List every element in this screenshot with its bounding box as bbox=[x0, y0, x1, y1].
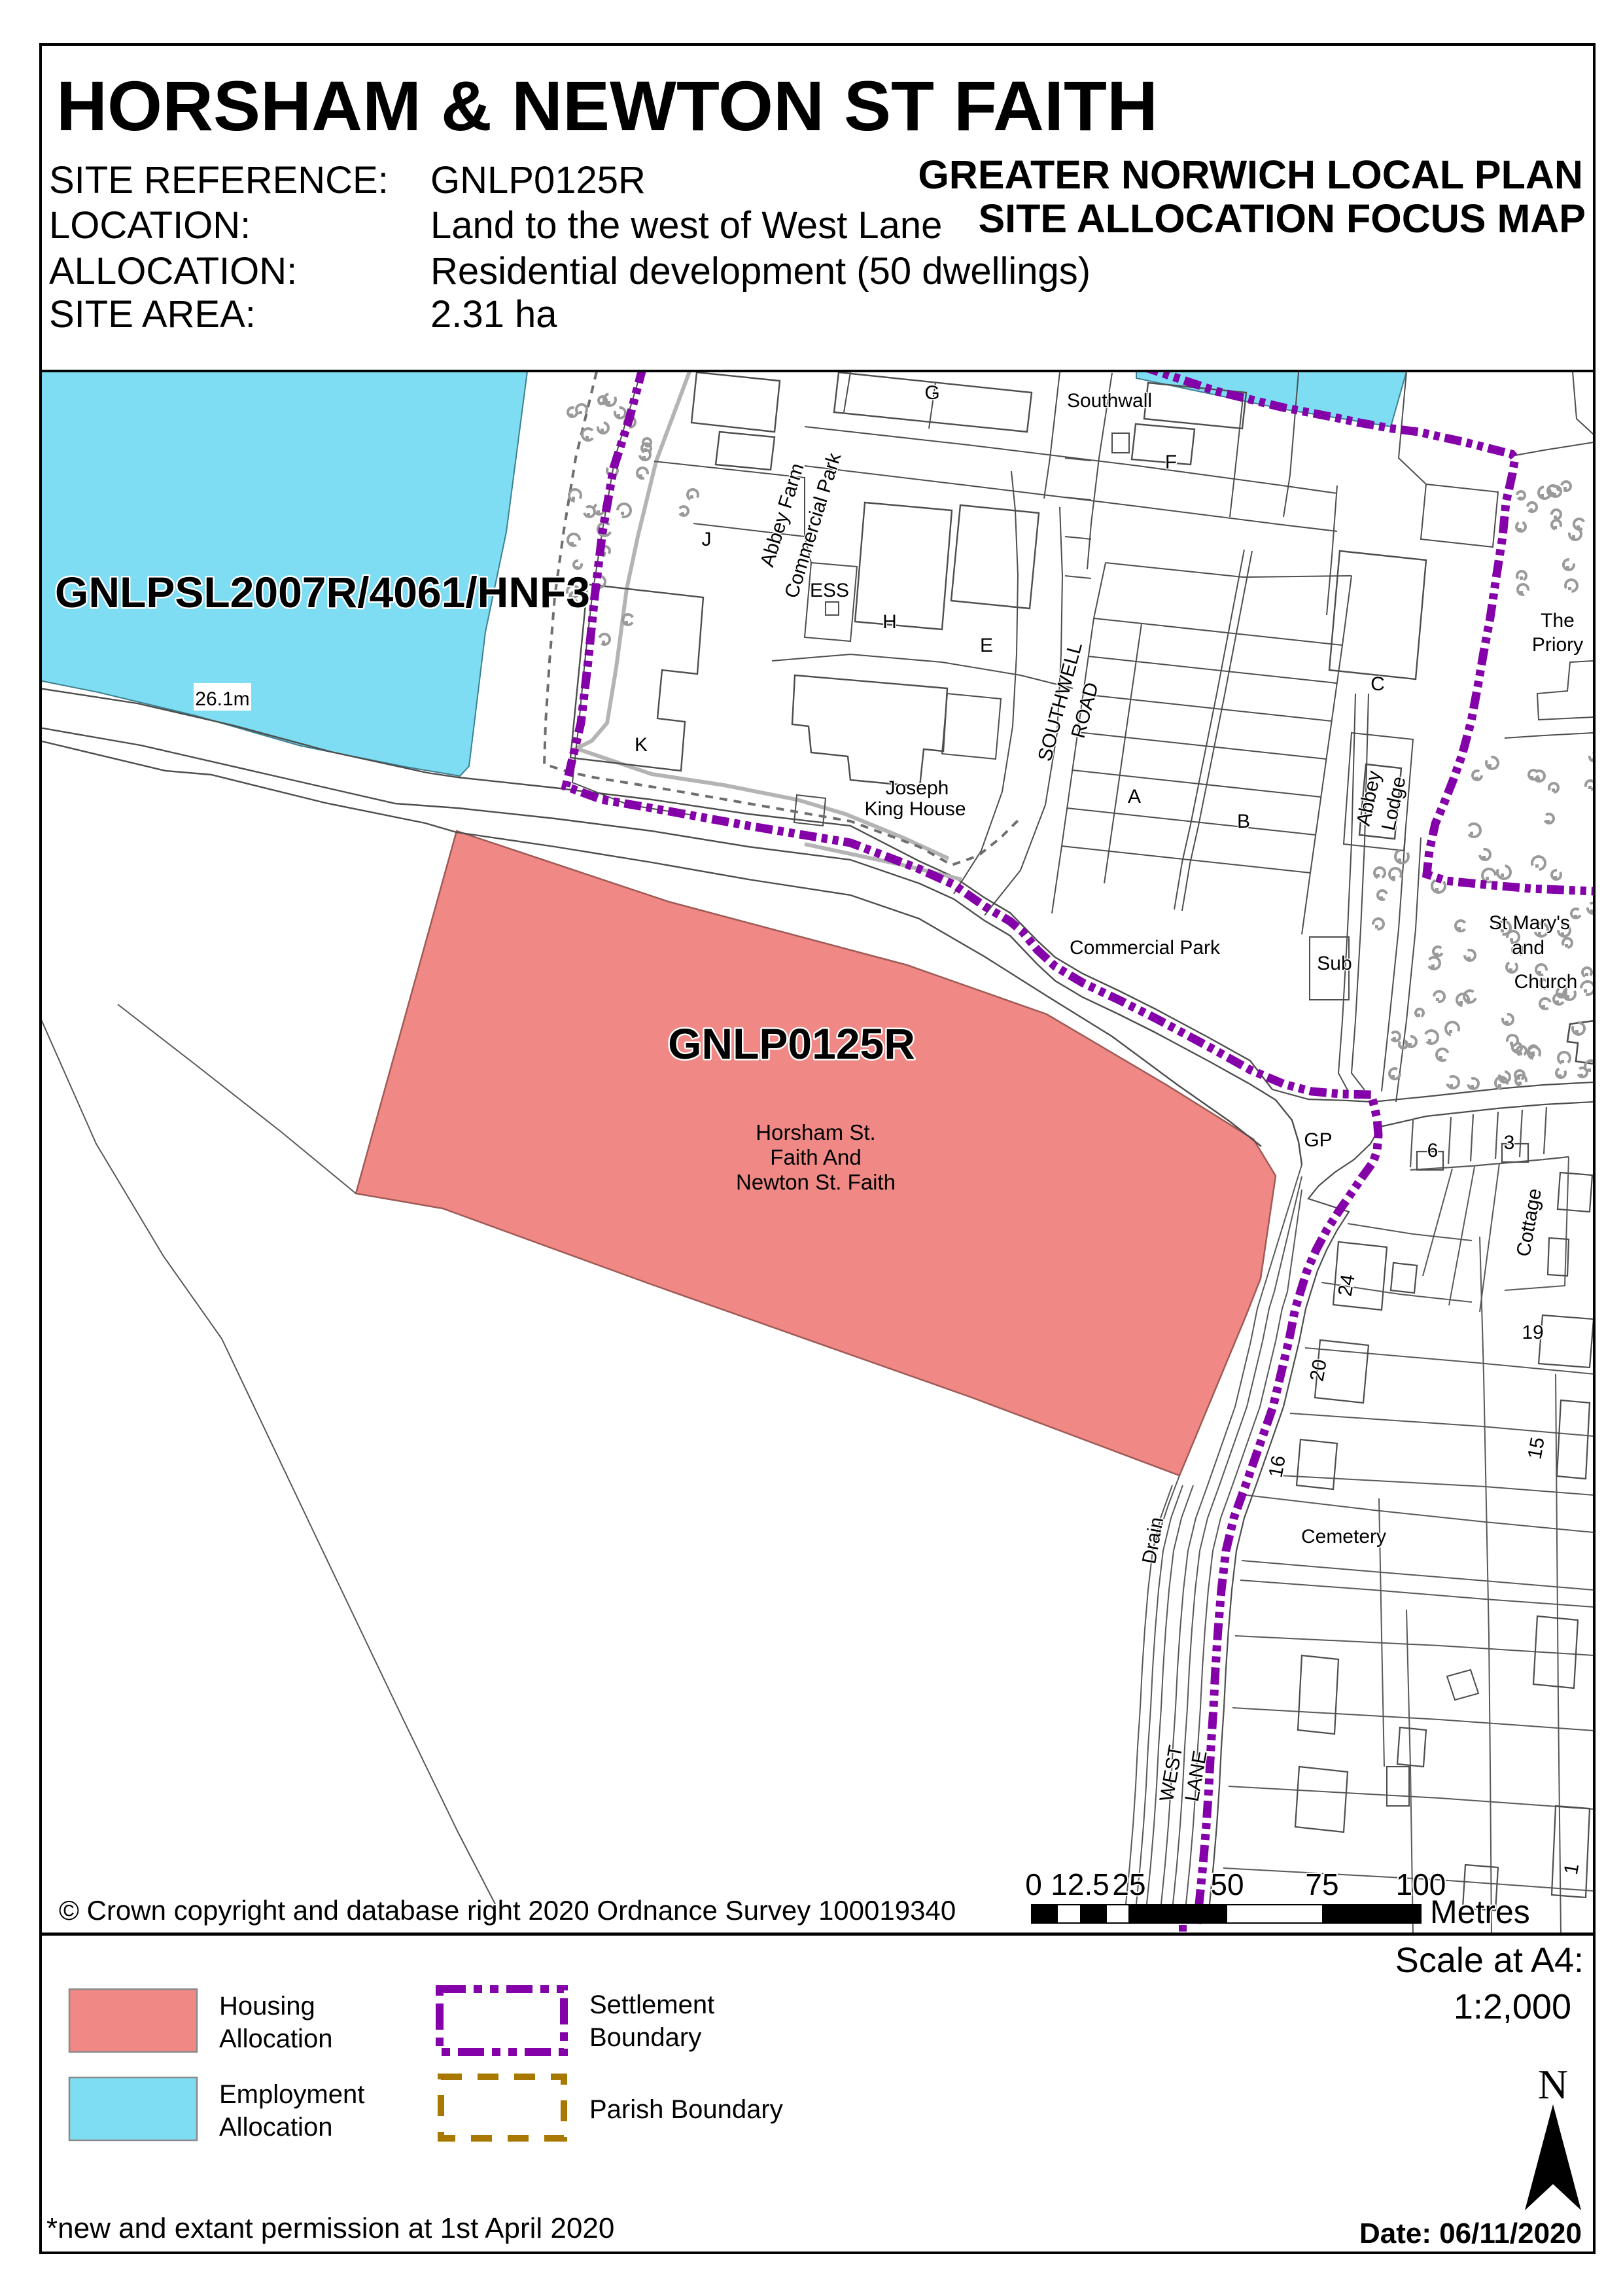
svg-text:Housing: Housing bbox=[219, 1992, 315, 2021]
svg-text:Allocation: Allocation bbox=[219, 2024, 332, 2053]
svg-text:Cemetery: Cemetery bbox=[1301, 1526, 1386, 1547]
svg-text:19: 19 bbox=[1522, 1322, 1543, 1343]
svg-text:F: F bbox=[1165, 451, 1177, 473]
svg-text:N: N bbox=[1538, 2061, 1568, 2108]
svg-text:J: J bbox=[702, 529, 712, 550]
svg-text:0: 0 bbox=[1025, 1867, 1042, 1901]
svg-text:Priory: Priory bbox=[1532, 634, 1583, 656]
svg-text:St Mary's: St Mary's bbox=[1489, 912, 1570, 934]
svg-text:Faith And: Faith And bbox=[770, 1145, 861, 1169]
svg-text:Commercial Park: Commercial Park bbox=[1070, 937, 1221, 959]
svg-text:and: and bbox=[1512, 937, 1544, 959]
svg-text:A: A bbox=[1128, 786, 1141, 807]
svg-text:The: The bbox=[1541, 610, 1575, 631]
svg-text:ALLOCATION:: ALLOCATION: bbox=[49, 250, 297, 292]
svg-text:3: 3 bbox=[1504, 1132, 1515, 1154]
svg-text:25: 25 bbox=[1112, 1867, 1145, 1901]
svg-text:SITE ALLOCATION FOCUS MAP: SITE ALLOCATION FOCUS MAP bbox=[978, 196, 1586, 241]
svg-text:SITE REFERENCE:: SITE REFERENCE: bbox=[49, 159, 389, 202]
svg-text:© Crown copyright and database: © Crown copyright and database right 202… bbox=[59, 1895, 956, 1926]
svg-text:GNLP0125R: GNLP0125R bbox=[668, 1019, 915, 1068]
svg-text:Residential development (50 dw: Residential development (50 dwellings) bbox=[430, 250, 1091, 292]
svg-text:Sub: Sub bbox=[1317, 953, 1352, 974]
svg-text:Parish Boundary: Parish Boundary bbox=[589, 2095, 783, 2124]
svg-text:King House: King House bbox=[864, 798, 966, 820]
svg-text:12.5: 12.5 bbox=[1051, 1867, 1109, 1901]
svg-text:SITE AREA:: SITE AREA: bbox=[49, 293, 256, 336]
svg-text:16: 16 bbox=[1265, 1454, 1289, 1479]
svg-text:6: 6 bbox=[1427, 1140, 1439, 1161]
svg-text:B: B bbox=[1237, 811, 1250, 832]
svg-text:Scale at A4:: Scale at A4: bbox=[1395, 1941, 1584, 1980]
svg-text:Southwall: Southwall bbox=[1067, 390, 1152, 412]
svg-text:E: E bbox=[980, 635, 993, 656]
svg-text:Metres: Metres bbox=[1430, 1894, 1530, 1930]
svg-text:2.31 ha: 2.31 ha bbox=[430, 293, 557, 336]
svg-text:Boundary: Boundary bbox=[589, 2023, 701, 2052]
svg-text:C: C bbox=[1370, 673, 1385, 695]
svg-text:75: 75 bbox=[1305, 1867, 1338, 1901]
svg-text:GNLP0125R: GNLP0125R bbox=[430, 159, 646, 202]
svg-text:15: 15 bbox=[1524, 1436, 1548, 1461]
svg-text:Allocation: Allocation bbox=[219, 2113, 332, 2142]
svg-text:20: 20 bbox=[1306, 1358, 1331, 1383]
svg-text:Newton St. Faith: Newton St. Faith bbox=[736, 1170, 896, 1194]
svg-text:50: 50 bbox=[1210, 1867, 1244, 1901]
svg-text:26.1m: 26.1m bbox=[195, 688, 249, 710]
svg-text:GNLPSL2007R/4061/HNF3: GNLPSL2007R/4061/HNF3 bbox=[55, 568, 590, 616]
svg-text:Joseph: Joseph bbox=[886, 777, 949, 799]
svg-text:LOCATION:: LOCATION: bbox=[49, 204, 251, 247]
svg-text:GP: GP bbox=[1304, 1129, 1332, 1151]
svg-text:Date: 06/11/2020: Date: 06/11/2020 bbox=[1359, 2217, 1582, 2250]
svg-text:HORSHAM & NEWTON ST FAITH: HORSHAM & NEWTON ST FAITH bbox=[56, 66, 1158, 145]
svg-text:24: 24 bbox=[1334, 1273, 1359, 1298]
svg-text:GREATER NORWICH LOCAL PLAN: GREATER NORWICH LOCAL PLAN bbox=[918, 152, 1583, 197]
svg-text:1:2,000: 1:2,000 bbox=[1454, 1987, 1571, 2026]
svg-text:Horsham St.: Horsham St. bbox=[756, 1120, 875, 1144]
svg-text:H: H bbox=[882, 611, 897, 633]
svg-text:G: G bbox=[924, 382, 939, 404]
svg-text:Land to the west of West Lane: Land to the west of West Lane bbox=[430, 204, 942, 247]
svg-text:*new and extant permission at: *new and extant permission at 1st April … bbox=[46, 2212, 614, 2244]
svg-text:K: K bbox=[635, 734, 648, 756]
svg-text:ESS: ESS bbox=[810, 580, 849, 601]
svg-text:Settlement: Settlement bbox=[589, 1990, 714, 2019]
svg-text:Employment: Employment bbox=[219, 2080, 364, 2109]
svg-text:Church: Church bbox=[1514, 971, 1578, 993]
